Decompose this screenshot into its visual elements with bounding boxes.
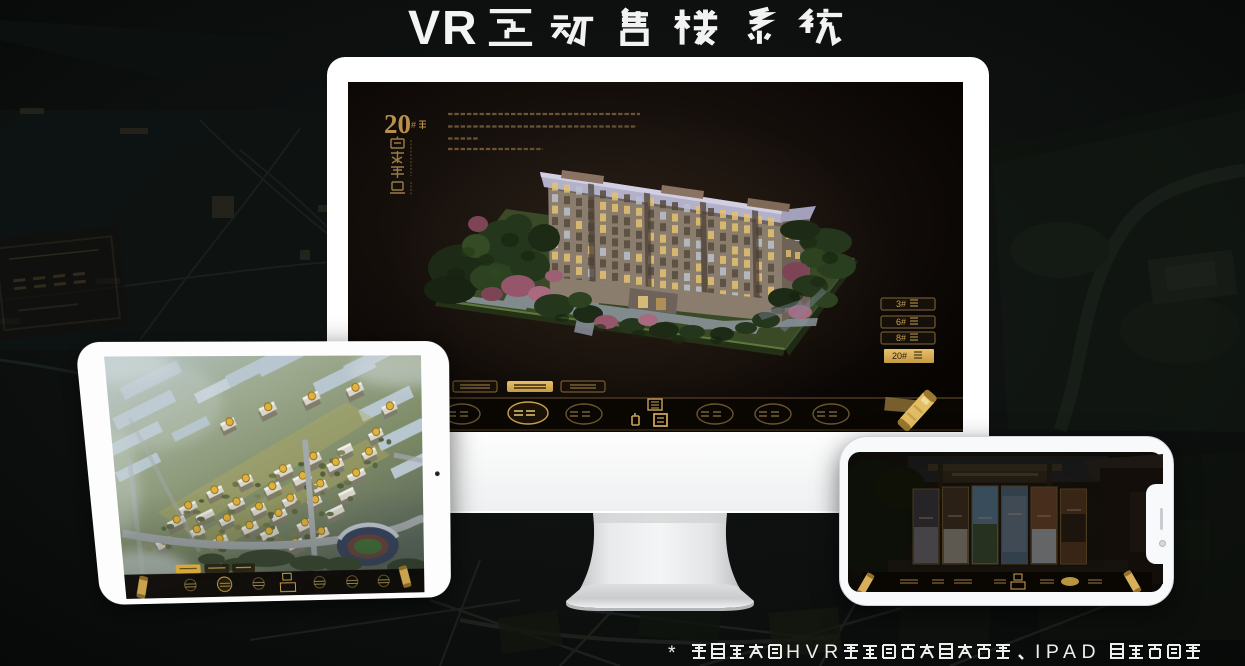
- svg-text:IPAD: IPAD: [1035, 641, 1101, 663]
- svg-text:8#: 8#: [896, 333, 906, 343]
- svg-text:HVR: HVR: [786, 641, 844, 663]
- svg-text:20#: 20#: [892, 351, 907, 361]
- svg-text:*: *: [668, 642, 681, 664]
- svg-text:3#: 3#: [896, 299, 906, 309]
- svg-text:#: #: [411, 120, 416, 130]
- svg-text:6#: 6#: [896, 317, 906, 327]
- svg-text:20: 20: [384, 109, 411, 139]
- svg-text:VR: VR: [408, 2, 479, 55]
